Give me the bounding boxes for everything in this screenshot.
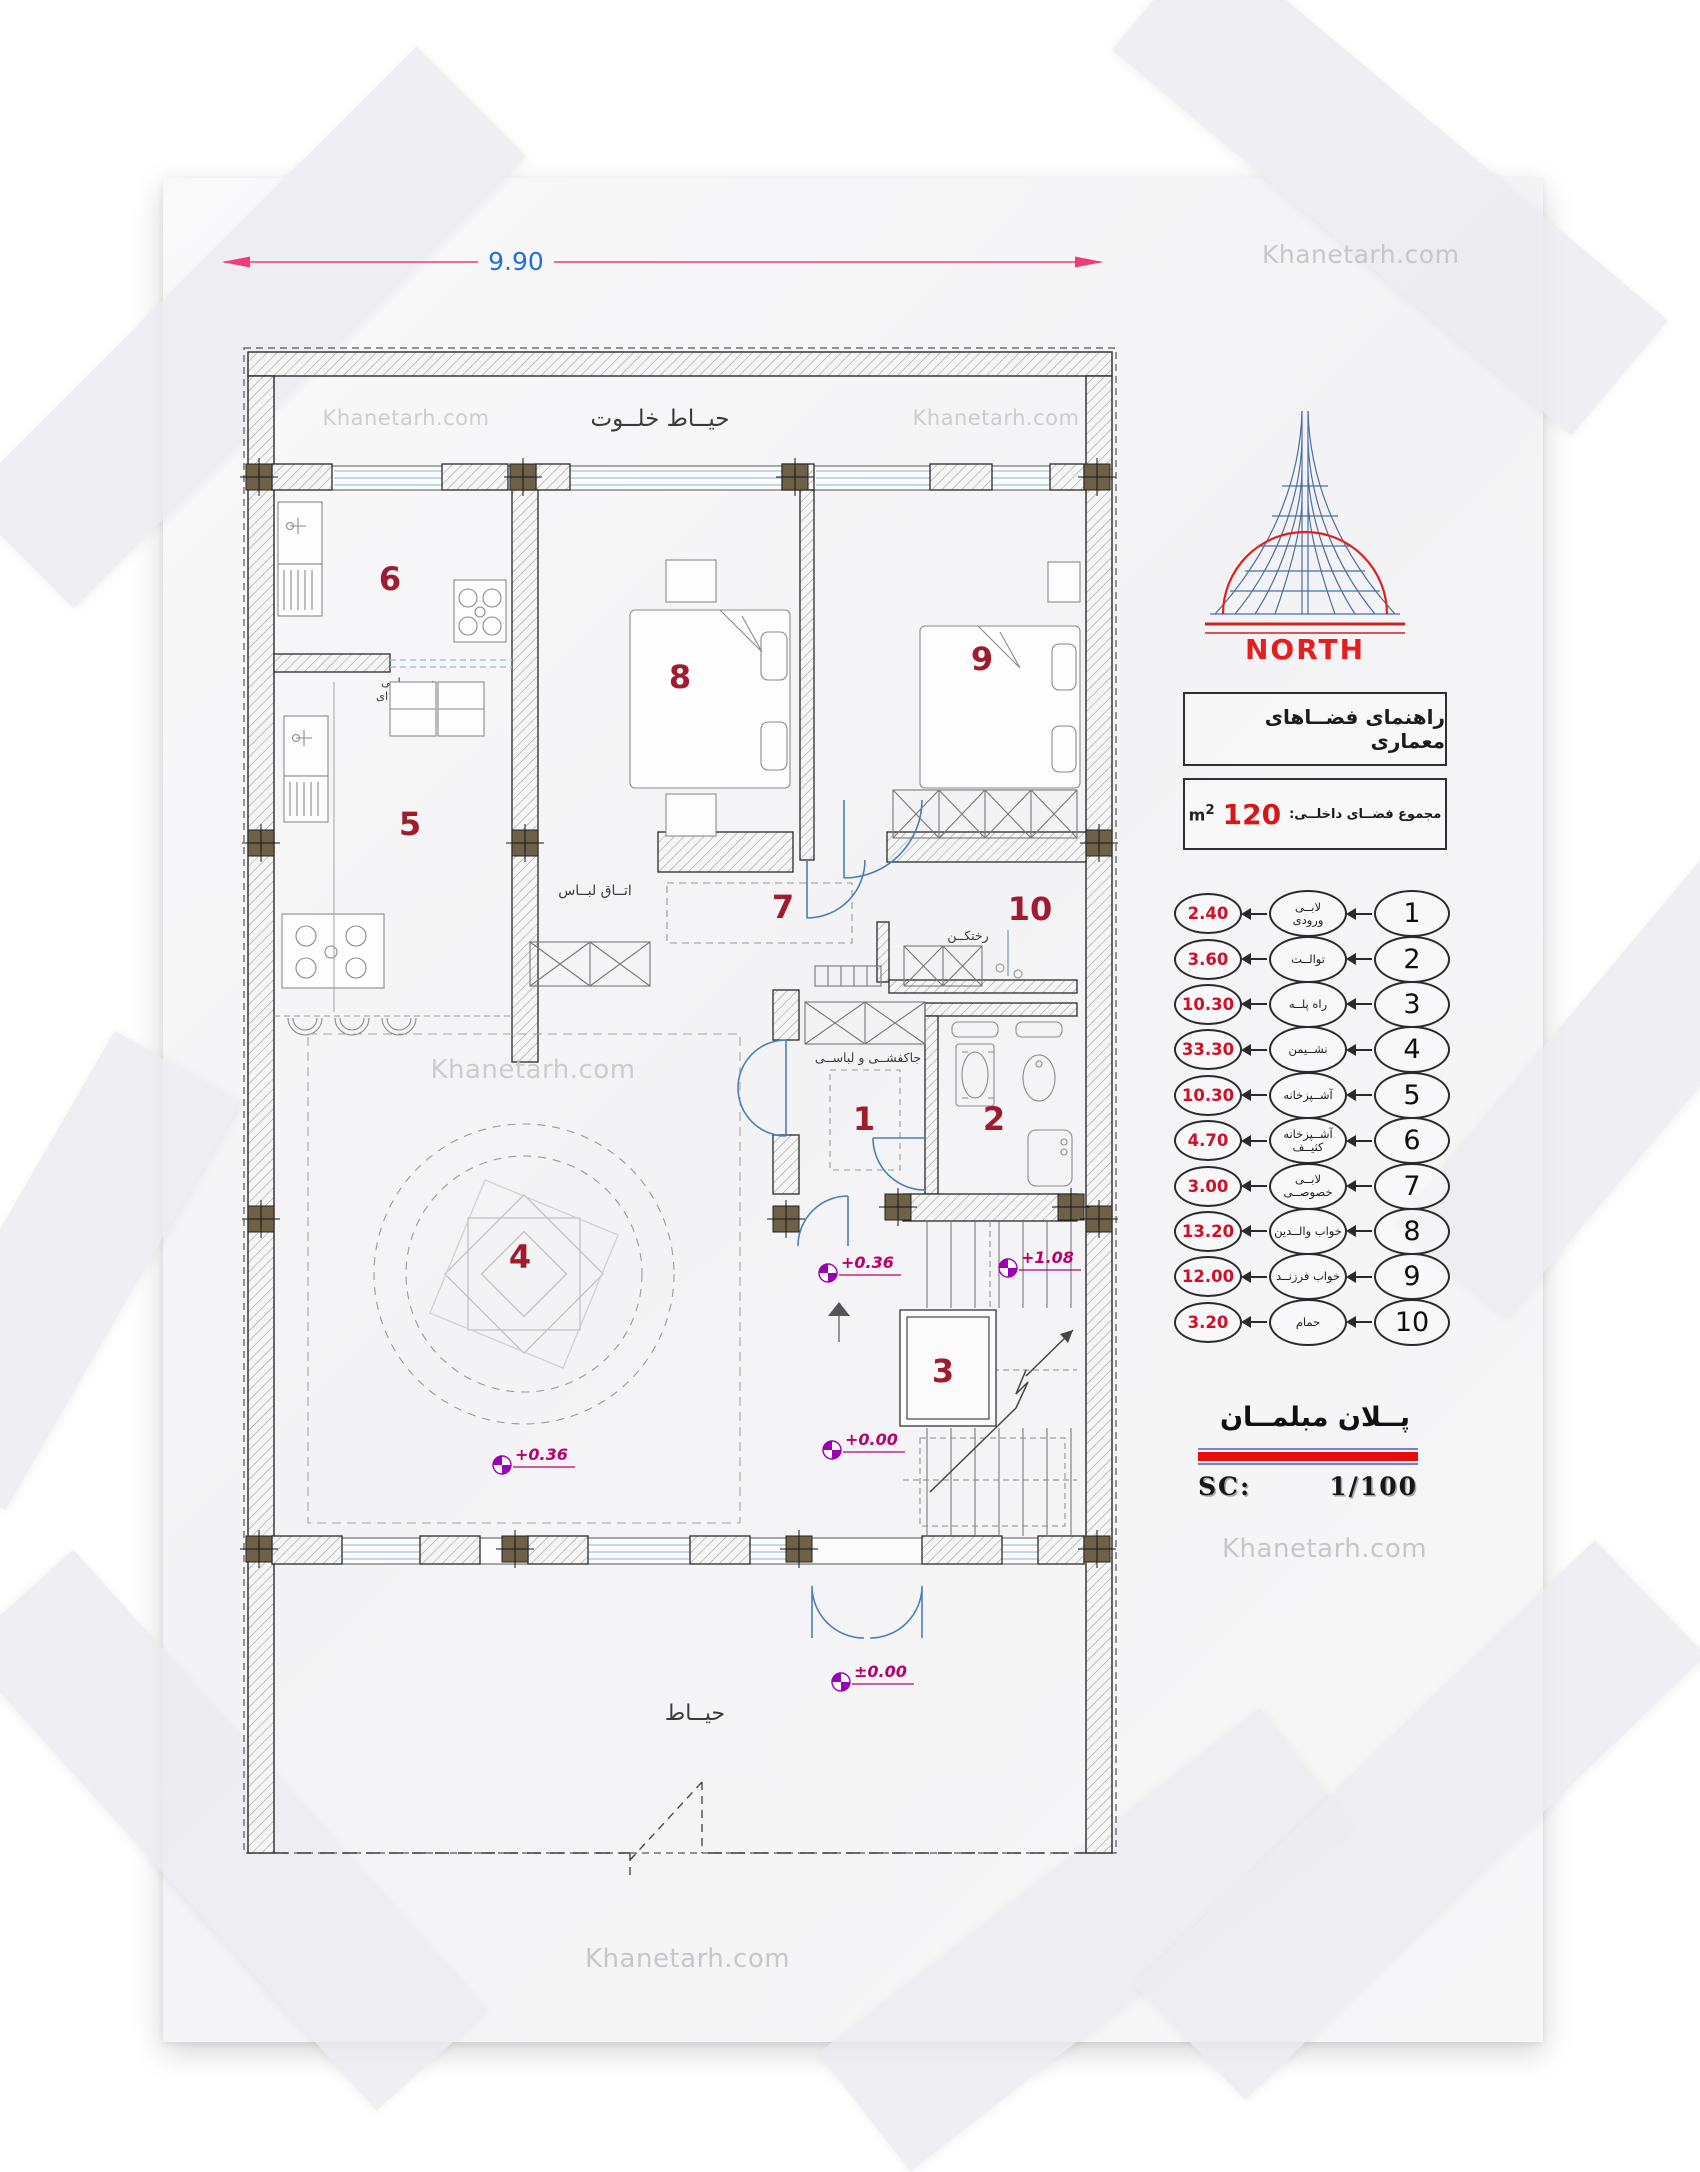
watermark-panel: Khanetarh.com [1222,1534,1427,1564]
legend-number: 7 [1374,1163,1450,1210]
legend-number: 4 [1374,1026,1450,1073]
legend-row-2: 3.60 توالــت 2 [1174,936,1450,981]
legend-name: نشــیمن [1269,1026,1347,1073]
yard: حیــاط [274,1701,1086,1875]
arrow-left-icon [1349,1230,1372,1232]
total-area-label: مجموع فضــای داخلــی: [1289,807,1441,822]
legend-row-9: 12.00 خواب فرزنــد 9 [1174,1254,1450,1299]
guide-title: راهنمای فضــاهای معماری [1185,705,1445,753]
room-2: 2 [952,1022,1072,1186]
elevation-yard: ±0.00 [832,1662,914,1691]
legend-number: 3 [1374,981,1450,1028]
room-1: جاکفشــی و لباســی 1 [805,1002,925,1170]
room-10: 10 رختکــن [815,890,1052,986]
arrow-left-icon [1244,1094,1267,1096]
yard-label: حیــاط [665,1701,725,1726]
dressing-label: اتــاق لبــاس [558,883,632,899]
arrow-left-icon [1244,1321,1267,1323]
guide-title-box: راهنمای فضــاهای معماری [1183,692,1447,766]
elevation-stair-mid: +0.36 [819,1253,901,1282]
legend-number: 9 [1374,1253,1450,1300]
legend-row-5: 10.30 آشــپزخانه 5 [1174,1073,1450,1118]
dim-arrow-left [222,257,250,268]
room-3-number: 3 [932,1352,954,1390]
dimension-9-90: 9.90 [190,225,1150,295]
window-row-top [272,464,1086,490]
dressing-area: اتــاق لبــاس [530,883,650,986]
room-9: 9 [893,562,1080,838]
dimension-value: 9.90 [488,247,544,276]
arrow-left-icon [1244,1276,1267,1278]
arrow-left-icon [1349,1321,1372,1323]
total-area-unit: m2 [1189,803,1215,824]
room-10-number: 10 [1008,890,1053,928]
room-1-number: 1 [853,1100,875,1138]
legend-name: آشــپزخانه کثیــف [1269,1117,1347,1164]
room-7: 7 [667,883,852,943]
arrow-left-icon [1244,1230,1267,1232]
north-symbol: NORTH [1190,396,1420,666]
room-5: 5 [274,682,512,1035]
watermark-backyard-right: Khanetarh.com [913,406,1080,430]
legend-area: 4.70 [1174,1120,1242,1161]
dim-arrow-right [1075,257,1103,268]
arrow-left-icon [1244,913,1267,915]
legend-row-3: 10.30 راه پلــه 3 [1174,982,1450,1027]
legend-name: راه پلــه [1269,981,1347,1028]
shoe-rack-label: جاکفشــی و لباســی [815,1050,921,1066]
arrow-left-icon [1349,1003,1372,1005]
legend-number: 5 [1374,1072,1450,1119]
scale-row: SC: 1/100 [1198,1472,1418,1501]
legend-area: 13.20 [1174,1211,1242,1252]
title-rule-red [1198,1452,1418,1461]
scale-value: 1/100 [1329,1472,1418,1501]
room-6: 6 [278,502,506,642]
legend-number: 8 [1374,1208,1450,1255]
watermark-top-right: Khanetarh.com [1262,240,1459,269]
legend-area: 10.30 [1174,984,1242,1025]
legend-name: توالــت [1269,936,1347,983]
floor-plan: حیــاط خلــوت Khanetarh.com Khanetarh.co… [230,330,1130,1890]
watermark-living: Khanetarh.com [430,1055,635,1085]
north-spire-icon [1210,411,1400,614]
legend-name: حمام [1269,1299,1347,1346]
backyard: حیــاط خلــوت Khanetarh.com Khanetarh.co… [323,406,1080,432]
legend-area: 3.00 [1174,1166,1242,1207]
svg-text:+0.36: +0.36 [841,1253,894,1272]
changing-label: رختکــن [947,928,988,944]
scale-label: SC: [1198,1472,1251,1501]
svg-text:+0.00: +0.00 [845,1430,898,1449]
room-8-number: 8 [669,658,691,696]
elevation-stair-top: +1.08 [999,1248,1081,1277]
arrow-left-icon [1349,1185,1372,1187]
arrow-left-icon [1244,1140,1267,1142]
svg-text:+1.08: +1.08 [1021,1248,1074,1267]
watermark-bottom: Khanetarh.com [585,1944,790,1974]
window-row-bottom [272,1536,1086,1564]
legend-row-8: 13.20 خواب والــدین 8 [1174,1209,1450,1254]
plan-title: پــلان مبلمــان [1183,1402,1447,1433]
room-8: 8 [630,560,790,836]
arrow-left-icon [1349,1140,1372,1142]
arrow-left-icon [1349,1276,1372,1278]
legend-name: آشــپزخانه [1269,1072,1347,1119]
legend-number: 10 [1374,1299,1450,1346]
arrow-left-icon [1349,913,1372,915]
arrow-left-icon [1349,958,1372,960]
legend-number: 2 [1374,936,1450,983]
watermark-backyard-left: Khanetarh.com [323,406,490,430]
room-9-number: 9 [971,640,993,678]
room-5-number: 5 [399,805,421,843]
legend-area: 10.30 [1174,1075,1242,1116]
backyard-label: حیــاط خلــوت [590,406,729,432]
total-area-value: 120 [1223,798,1281,831]
arrow-left-icon [1244,958,1267,960]
legend-name: خواب فرزنــد [1269,1253,1347,1300]
svg-text:+0.36: +0.36 [515,1445,568,1464]
legend-row-10: 3.20 حمام 10 [1174,1300,1450,1345]
room-2-number: 2 [983,1100,1005,1138]
legend-area: 3.60 [1174,939,1242,980]
svg-text:±0.00: ±0.00 [854,1662,907,1681]
legend-area: 3.20 [1174,1302,1242,1343]
legend-number: 1 [1374,890,1450,937]
arrow-left-icon [1244,1003,1267,1005]
elevation-stair-base: +0.00 [823,1430,905,1459]
arrow-left-icon [1244,1185,1267,1187]
legend-row-7: 3.00 لابــی خصوصــی 7 [1174,1163,1450,1208]
arrow-left-icon [1349,1094,1372,1096]
legend-area: 12.00 [1174,1256,1242,1297]
title-rule-bottom [1198,1463,1418,1465]
title-rule-top [1198,1448,1418,1450]
legend-name: لابــی ورودی [1269,890,1347,937]
elevation-living: +0.36 [493,1445,575,1474]
room-legend: 2.40 لابــی ورودی 1 3.60 توالــت 2 10.30… [1174,891,1450,1345]
legend-number: 6 [1374,1117,1450,1164]
room-7-number: 7 [772,888,794,926]
room-6-number: 6 [379,560,401,598]
legend-row-6: 4.70 آشــپزخانه کثیــف 6 [1174,1118,1450,1163]
legend-area: 2.40 [1174,893,1242,934]
north-label: NORTH [1245,633,1365,666]
arrow-left-icon [1244,1049,1267,1051]
legend-name: خواب والــدین [1269,1208,1347,1255]
legend-row-4: 33.30 نشــیمن 4 [1174,1027,1450,1072]
arrow-left-icon [1349,1049,1372,1051]
legend-area: 33.30 [1174,1029,1242,1070]
legend-row-1: 2.40 لابــی ورودی 1 [1174,891,1450,936]
total-area-box: مجموع فضــای داخلــی: 120 m2 [1183,778,1447,850]
legend-name: لابــی خصوصــی [1269,1163,1347,1210]
room-4-number: 4 [509,1238,531,1276]
